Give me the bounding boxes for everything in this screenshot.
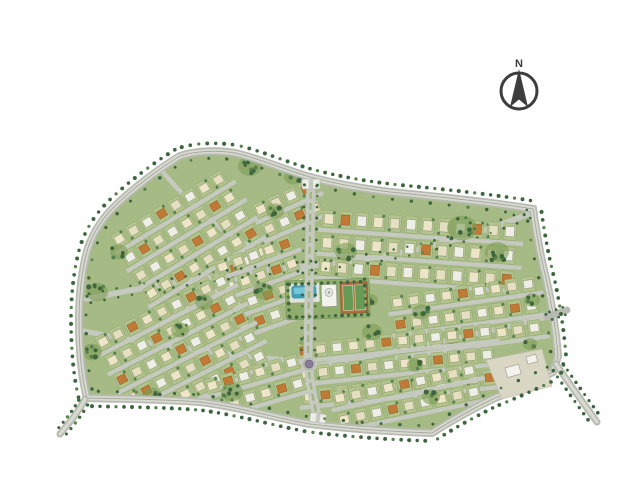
- tree-icon: [339, 266, 341, 268]
- tree-icon: [269, 273, 271, 275]
- tree-icon: [254, 289, 259, 294]
- tree-icon: [529, 199, 532, 202]
- tree-icon: [543, 234, 547, 238]
- villa-house: [332, 343, 342, 352]
- tree-icon: [104, 226, 107, 229]
- tree-icon: [476, 236, 478, 238]
- villa-house: [513, 325, 523, 334]
- tree-icon: [587, 399, 590, 402]
- tree-icon: [301, 272, 304, 275]
- tree-icon: [295, 428, 298, 431]
- tree-icon: [271, 423, 274, 426]
- tree-icon: [91, 258, 94, 261]
- tree-icon: [271, 154, 275, 158]
- tree-icon: [214, 142, 217, 145]
- tree-icon: [431, 390, 436, 395]
- tree-icon: [301, 260, 304, 263]
- villa-house: [438, 246, 448, 257]
- tree-icon: [85, 295, 88, 298]
- tree-icon: [319, 431, 323, 435]
- villa-house: [335, 366, 345, 375]
- villa-house: [405, 243, 415, 254]
- tree-icon: [314, 261, 317, 264]
- tree-icon: [558, 304, 561, 307]
- tree-icon: [75, 387, 78, 390]
- tree-icon: [83, 232, 87, 236]
- tree-icon: [158, 288, 161, 291]
- tree-icon: [268, 264, 270, 266]
- tree-icon: [87, 225, 90, 228]
- tree-icon: [303, 183, 306, 186]
- gate-opening: [309, 179, 313, 189]
- tree-icon: [410, 200, 413, 203]
- compass-label: N: [515, 58, 523, 70]
- tree-icon: [186, 407, 190, 411]
- tree-icon: [85, 314, 88, 317]
- tree-icon: [194, 408, 197, 411]
- tree-icon: [80, 240, 84, 244]
- tree-icon: [351, 255, 353, 257]
- tree-icon: [353, 192, 356, 195]
- tree-icon: [103, 299, 106, 302]
- tree-icon: [560, 320, 563, 323]
- tree-icon: [491, 406, 494, 409]
- tree-icon: [143, 188, 146, 191]
- tree-icon: [170, 277, 173, 280]
- villa-house: [399, 379, 409, 389]
- tree-icon: [353, 264, 355, 266]
- tree-icon: [551, 272, 555, 276]
- tree-icon: [89, 355, 93, 359]
- tree-icon: [110, 246, 114, 250]
- tree-icon: [315, 228, 318, 231]
- tree-icon: [203, 297, 206, 300]
- tree-icon: [314, 282, 317, 285]
- tree-icon: [286, 289, 289, 292]
- tree-icon: [101, 290, 104, 293]
- villa-house: [398, 336, 408, 345]
- tree-icon: [77, 249, 80, 252]
- tree-icon: [360, 313, 363, 316]
- tree-icon: [346, 280, 350, 284]
- villa-house: [505, 226, 515, 237]
- tree-icon: [181, 333, 184, 336]
- tree-icon: [205, 141, 209, 145]
- tree-icon: [463, 240, 466, 243]
- tree-icon: [448, 412, 452, 416]
- tree-icon: [370, 180, 373, 183]
- tree-icon: [256, 419, 259, 422]
- tree-icon: [263, 421, 267, 425]
- villa-house: [419, 268, 429, 279]
- tree-icon: [305, 415, 308, 418]
- tree-icon: [359, 280, 363, 284]
- villa-house: [454, 247, 464, 258]
- tree-icon: [240, 267, 243, 270]
- tree-icon: [96, 241, 99, 244]
- tree-icon: [560, 382, 563, 385]
- tree-icon: [283, 272, 285, 274]
- tree-icon: [89, 301, 92, 304]
- tree-icon: [139, 171, 143, 175]
- tree-icon: [441, 187, 445, 191]
- villa-lot: [132, 407, 150, 426]
- villa-house: [489, 225, 499, 236]
- tree-icon: [592, 405, 595, 408]
- tree-icon: [278, 157, 281, 160]
- tree-icon: [366, 313, 370, 317]
- tree-icon: [185, 324, 188, 327]
- tree-icon: [127, 181, 130, 184]
- tree-icon: [198, 296, 202, 300]
- tree-icon: [157, 280, 160, 283]
- tree-icon: [97, 210, 100, 213]
- tree-icon: [557, 316, 560, 319]
- tree-icon: [224, 412, 228, 416]
- tree-icon: [315, 217, 318, 220]
- tree-icon: [456, 217, 459, 220]
- tree-icon: [129, 200, 132, 203]
- tree-icon: [460, 232, 463, 235]
- tree-icon: [114, 405, 117, 408]
- villa-house: [367, 386, 377, 396]
- tree-icon: [361, 421, 364, 424]
- tree-icon: [473, 191, 476, 194]
- villa-house: [354, 264, 364, 275]
- villa-house: [409, 296, 419, 305]
- tree-icon: [308, 315, 312, 319]
- tree-icon: [90, 345, 94, 349]
- tree-icon: [117, 296, 120, 299]
- villa-house: [357, 216, 367, 227]
- villa-house: [482, 350, 492, 359]
- tree-icon: [394, 257, 397, 260]
- tree-icon: [286, 159, 290, 163]
- tree-icon: [69, 427, 72, 430]
- tree-icon: [570, 375, 573, 378]
- tree-icon: [582, 412, 585, 415]
- tree-icon: [146, 167, 149, 170]
- tree-icon: [85, 347, 89, 351]
- tree-icon: [296, 270, 299, 273]
- tree-icon: [473, 228, 475, 230]
- villa-house: [431, 333, 441, 342]
- tree-icon: [90, 387, 94, 391]
- tree-icon: [247, 146, 251, 150]
- tree-icon: [449, 244, 452, 247]
- tree-icon: [300, 164, 304, 168]
- tree-icon: [549, 380, 553, 384]
- tree-icon: [383, 437, 387, 441]
- tree-icon: [212, 271, 214, 273]
- tree-icon: [249, 403, 252, 406]
- tree-icon: [537, 276, 540, 279]
- villa-house: [468, 387, 478, 397]
- tree-icon: [534, 371, 537, 374]
- tree-icon: [154, 391, 157, 394]
- tree-icon: [214, 280, 216, 282]
- tree-icon: [316, 169, 319, 172]
- tree-icon: [190, 159, 193, 162]
- tree-icon: [287, 426, 291, 430]
- tree-icon: [222, 142, 226, 146]
- villa-house: [491, 284, 501, 293]
- tree-icon: [335, 433, 338, 436]
- tree-icon: [466, 206, 469, 209]
- tree-icon: [143, 282, 145, 284]
- tree-icon: [504, 211, 507, 214]
- tree-icon: [300, 326, 303, 329]
- tree-icon: [74, 404, 77, 407]
- tree-icon: [416, 367, 419, 370]
- tree-icon: [249, 171, 253, 175]
- tree-icon: [409, 184, 412, 187]
- tree-icon: [436, 437, 439, 440]
- tree-icon: [278, 173, 281, 176]
- master-plan-map: N: [0, 0, 640, 480]
- tree-icon: [342, 419, 345, 422]
- tree-icon: [372, 195, 375, 198]
- tree-icon: [314, 305, 317, 308]
- tree-icon: [313, 327, 316, 330]
- tree-icon: [569, 394, 573, 398]
- tree-icon: [343, 434, 347, 438]
- tree-icon: [505, 400, 508, 403]
- tree-icon: [258, 287, 263, 292]
- tree-icon: [82, 410, 85, 413]
- tree-icon: [197, 142, 200, 145]
- tree-icon: [65, 433, 68, 436]
- tree-icon: [289, 175, 293, 179]
- tree-icon: [88, 292, 91, 295]
- tree-icon: [340, 281, 343, 284]
- tree-icon: [546, 249, 550, 253]
- tree-icon: [131, 294, 133, 296]
- tree-icon: [86, 403, 89, 406]
- tree-icon: [211, 395, 214, 398]
- tree-icon: [365, 253, 368, 256]
- tree-icon: [146, 405, 150, 409]
- tree-icon: [375, 437, 378, 440]
- tree-icon: [516, 222, 519, 225]
- villa-house: [461, 311, 471, 320]
- tree-icon: [230, 399, 233, 402]
- tree-icon: [173, 148, 177, 152]
- tree-icon: [93, 285, 96, 288]
- tree-icon: [106, 405, 110, 409]
- tree-icon: [241, 276, 244, 279]
- tree-icon: [108, 198, 112, 202]
- tree-icon: [365, 310, 368, 313]
- tree-icon: [351, 435, 354, 438]
- villa-house: [403, 267, 413, 278]
- tree-icon: [323, 417, 326, 420]
- tree-icon: [286, 282, 290, 286]
- tree-icon: [449, 236, 453, 240]
- tree-icon: [512, 397, 516, 401]
- tree-icon: [263, 151, 267, 155]
- tree-icon: [420, 311, 425, 316]
- villa-house: [448, 369, 458, 379]
- compass-rose: N: [501, 58, 537, 109]
- villa-house: [388, 242, 398, 253]
- tree-icon: [435, 248, 438, 251]
- tree-icon: [102, 203, 106, 207]
- tree-icon: [93, 354, 98, 359]
- villa-house: [384, 361, 394, 370]
- tree-icon: [362, 178, 366, 182]
- tree-icon: [94, 348, 98, 352]
- tree-icon: [62, 421, 65, 424]
- tree-icon: [553, 280, 556, 283]
- tree-icon: [497, 194, 501, 198]
- tree-icon: [401, 183, 405, 187]
- tree-icon: [385, 182, 389, 186]
- tree-icon: [520, 393, 524, 397]
- tree-icon: [392, 248, 395, 251]
- villa-house: [469, 272, 479, 283]
- villa-house: [452, 271, 462, 282]
- tree-icon: [226, 269, 229, 272]
- tree-icon: [246, 161, 250, 165]
- tree-icon: [431, 423, 434, 426]
- tree-icon: [227, 278, 230, 281]
- tree-icon: [162, 406, 166, 410]
- tree-icon: [152, 161, 156, 165]
- tree-icon: [449, 429, 453, 433]
- tree-icon: [521, 197, 525, 201]
- tree-icon: [380, 260, 383, 263]
- tree-icon: [363, 284, 367, 288]
- villa-house: [433, 355, 443, 364]
- tree-icon: [242, 161, 246, 165]
- tree-grove: [221, 383, 243, 401]
- tree-icon: [209, 410, 213, 414]
- roundabout-island: [305, 360, 313, 368]
- tree-icon: [363, 290, 366, 293]
- villa-house: [365, 339, 375, 348]
- villa-house: [406, 219, 416, 230]
- tree-icon: [420, 243, 422, 245]
- tree-icon: [561, 328, 565, 332]
- tree-icon: [115, 212, 119, 216]
- tree-icon: [377, 180, 381, 184]
- tree-icon: [236, 384, 239, 387]
- villa-house: [510, 304, 520, 313]
- tree-icon: [359, 435, 363, 439]
- tree-icon: [503, 227, 506, 230]
- tree-icon: [392, 438, 395, 441]
- villa-house: [321, 262, 331, 273]
- villa-house: [136, 411, 148, 422]
- tree-icon: [86, 351, 89, 354]
- villa-house: [523, 280, 533, 289]
- tree-icon: [74, 421, 77, 424]
- villa-house: [458, 289, 468, 298]
- tree-icon: [217, 411, 220, 414]
- villa-house: [349, 341, 359, 350]
- tree-icon: [376, 330, 381, 335]
- tree-icon: [559, 312, 563, 316]
- villa-house: [392, 298, 402, 307]
- roundabout: [301, 356, 317, 372]
- tree-icon: [347, 256, 351, 260]
- tree-icon: [69, 338, 73, 342]
- villa-house: [415, 376, 425, 386]
- tree-icon: [154, 406, 157, 409]
- tree-icon: [300, 349, 303, 352]
- tree-icon: [172, 286, 175, 289]
- tree-icon: [71, 362, 75, 366]
- tree-icon: [296, 179, 299, 182]
- tree-icon: [287, 315, 291, 319]
- tree-icon: [413, 312, 417, 316]
- tree-icon: [526, 299, 530, 303]
- villa-house: [474, 286, 484, 295]
- tree-icon: [166, 152, 170, 156]
- tree-icon: [513, 214, 516, 217]
- tree-icon: [393, 183, 396, 186]
- tree-icon: [279, 424, 283, 428]
- villa-house: [494, 306, 504, 315]
- tree-icon: [586, 418, 590, 422]
- tree-icon: [188, 143, 192, 147]
- tree-icon: [417, 185, 421, 189]
- tree-icon: [556, 375, 559, 378]
- tree-icon: [449, 188, 452, 191]
- tree-icon: [526, 219, 529, 222]
- tree-icon: [417, 424, 420, 427]
- tree-icon: [74, 265, 77, 268]
- tree-icon: [152, 414, 156, 418]
- tree-icon: [529, 239, 532, 242]
- tree-icon: [268, 406, 272, 410]
- tree-icon: [367, 436, 371, 440]
- tree-icon: [346, 176, 350, 180]
- tree-icon: [467, 227, 472, 232]
- tree-icon: [533, 257, 536, 260]
- villa-house: [321, 390, 331, 399]
- tree-icon: [287, 295, 290, 298]
- tree-icon: [73, 379, 77, 383]
- villa-house: [316, 345, 326, 354]
- tree-icon: [366, 334, 371, 339]
- tree-icon: [442, 433, 446, 437]
- tree-icon: [255, 149, 258, 152]
- villa-house: [383, 383, 393, 393]
- villa-house: [355, 240, 365, 251]
- villa-house: [387, 266, 397, 277]
- tree-icon: [517, 379, 520, 382]
- tree-icon: [247, 417, 251, 421]
- villa-house: [447, 331, 457, 340]
- tree-icon: [545, 242, 548, 245]
- villa-house: [445, 313, 455, 322]
- villa-house: [449, 354, 459, 363]
- tree-icon: [556, 296, 560, 300]
- tree-icon: [523, 340, 527, 344]
- tree-icon: [583, 393, 586, 396]
- tree-icon: [561, 306, 564, 309]
- tree-icon: [225, 157, 228, 160]
- tree-icon: [228, 387, 232, 391]
- tree-icon: [311, 431, 314, 434]
- villa-house: [441, 291, 451, 300]
- tree-icon: [310, 269, 313, 272]
- tree-icon: [428, 201, 432, 205]
- tree-icon: [260, 167, 263, 170]
- tree-icon: [174, 166, 177, 169]
